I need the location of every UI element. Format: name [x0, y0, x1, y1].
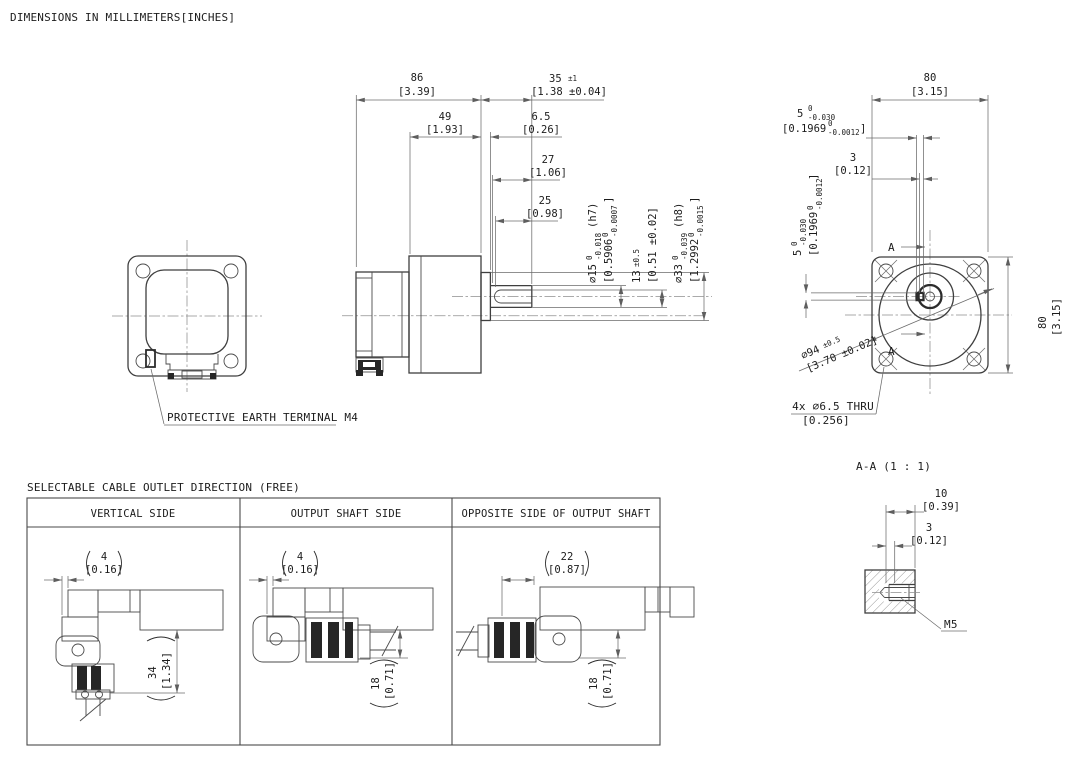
- section-title: A-A (1 : 1): [856, 460, 931, 473]
- svg-text:]: ]: [808, 174, 820, 180]
- dim-key-width: 5 0 -0.030 [0.1969 0 -0.0012 ]: [782, 104, 940, 138]
- svg-text:0: 0: [671, 255, 680, 260]
- mounting-hole: [224, 264, 238, 278]
- svg-text:80: 80: [924, 72, 937, 84]
- svg-text:0: 0: [585, 255, 594, 260]
- earth-terminal-label: PROTECTIVE EARTH TERMINAL M4: [167, 411, 358, 424]
- svg-text:[0.51 ±0.02]: [0.51 ±0.02]: [647, 207, 659, 283]
- svg-text:[1.93]: [1.93]: [426, 124, 464, 136]
- svg-text:[0.16]: [0.16]: [85, 564, 123, 576]
- column-header: OUTPUT SHAFT SIDE: [291, 508, 402, 520]
- svg-text:]: ]: [689, 197, 701, 203]
- cell-output-shaft-side: 4 [0.16] 18 [0.71]: [249, 551, 433, 707]
- svg-text:∅33: ∅33: [673, 264, 685, 283]
- svg-text:86: 86: [411, 72, 424, 84]
- mounting-hole: [136, 264, 150, 278]
- cell-vertical-side: 4 [0.16] 34 [1.34]: [44, 551, 223, 721]
- dim-80-top: 80 [3.15]: [872, 72, 988, 252]
- svg-text:6.5: 6.5: [532, 111, 551, 123]
- column-header: VERTICAL SIDE: [91, 508, 176, 520]
- mounting-hole: [136, 354, 150, 368]
- svg-text:[0.71]: [0.71]: [602, 662, 614, 700]
- dim-6-5: 6.5 [0.26]: [490, 111, 562, 137]
- dim-key-height: 13 ±0.5 [0.51 ±0.02]: [631, 207, 662, 307]
- svg-text:35: 35: [549, 73, 562, 85]
- dim-boss-diameter: ∅33 0 -0.039 (h8) [1.2992 0 -0.0015 ]: [671, 197, 705, 321]
- cell-opposite-side: 22 [0.87] 18 [0.71]: [456, 551, 694, 707]
- svg-text:22: 22: [561, 551, 574, 563]
- svg-text:49: 49: [439, 111, 452, 123]
- svg-text:[1.2992: [1.2992: [689, 239, 701, 283]
- svg-text:±0.5: ±0.5: [632, 249, 641, 267]
- dim-bolt-circle: ∅94 ±0.5 [3.70 ±0.02]: [799, 289, 994, 375]
- svg-text:18: 18: [588, 677, 600, 690]
- svg-text:10: 10: [935, 488, 948, 500]
- dim-49: 49 [1.93]: [410, 111, 481, 137]
- svg-text:±0.5: ±0.5: [821, 335, 841, 350]
- svg-text:-0.0012: -0.0012: [815, 178, 824, 210]
- svg-text:[1.06]: [1.06]: [529, 167, 567, 179]
- cable-outlet-table: SELECTABLE CABLE OUTLET DIRECTION (FREE)…: [27, 481, 694, 745]
- svg-text:-0.0007: -0.0007: [610, 205, 619, 237]
- section-view-a-a: A-A (1 : 1) 10 [0.39] 3 [0.12]: [856, 460, 967, 631]
- svg-text:34: 34: [147, 666, 159, 679]
- dim-25: 25 [0.98]: [496, 195, 564, 221]
- svg-text:(h8): (h8): [673, 203, 685, 228]
- svg-text:[0.1969: [0.1969: [808, 212, 820, 256]
- svg-text:]: ]: [603, 197, 615, 203]
- svg-text:[3.15]: [3.15]: [1051, 298, 1063, 336]
- svg-text:∅15: ∅15: [587, 264, 599, 283]
- svg-text:[0.16]: [0.16]: [281, 564, 319, 576]
- svg-text:0: 0: [790, 241, 799, 246]
- svg-text:[0.5906: [0.5906: [603, 239, 615, 283]
- gearhead-body: [409, 256, 481, 373]
- engineering-drawing: DIMENSIONS IN MILLIMETERS[INCHES] PROTEC…: [0, 0, 1072, 760]
- svg-text:[0.71]: [0.71]: [384, 662, 396, 700]
- dim-key-offset: 3 [0.12]: [834, 152, 938, 179]
- svg-text:[1.34]: [1.34]: [161, 652, 173, 690]
- column-header: OPPOSITE SIDE OF OUTPUT SHAFT: [461, 508, 651, 520]
- side-view: 86 [3.39] 35 ±1 [1.38 ±0.04] 49 [1.93] 6…: [342, 72, 712, 376]
- svg-text:-0.0012: -0.0012: [828, 128, 860, 137]
- svg-text:A: A: [888, 345, 895, 358]
- front-view: 80 [3.15] 5 0 -0.030 [0.1969 0 -0.0012 ]…: [782, 72, 1063, 427]
- rear-view: PROTECTIVE EARTH TERMINAL M4: [112, 240, 358, 425]
- svg-text:5: 5: [797, 108, 803, 120]
- svg-text:[0.12]: [0.12]: [834, 165, 872, 177]
- svg-text:4: 4: [297, 551, 303, 563]
- svg-text:[0.12]: [0.12]: [910, 535, 948, 547]
- drawing-page: DIMENSIONS IN MILLIMETERS[INCHES] PROTEC…: [0, 0, 1072, 760]
- svg-text:0: 0: [601, 232, 610, 237]
- holes-callout: 4x ∅6.5 THRU [0.256]: [791, 367, 884, 427]
- svg-text:A: A: [888, 241, 895, 254]
- earth-terminal: [146, 350, 155, 367]
- dim-86: 86 [3.39]: [356, 72, 481, 100]
- svg-text:[1.38 ±0.04]: [1.38 ±0.04]: [531, 86, 607, 98]
- mounting-hole: [224, 354, 238, 368]
- svg-text:-0.030: -0.030: [799, 218, 808, 246]
- svg-text:80: 80: [1037, 316, 1049, 329]
- svg-text:13: 13: [631, 270, 643, 283]
- dim-shaft-diameter: ∅15 0 -0.018 (h7) [0.5906 0 -0.0007 ]: [585, 197, 621, 308]
- svg-text:5: 5: [792, 250, 804, 256]
- svg-text:[0.256]: [0.256]: [802, 414, 850, 427]
- svg-text:[3.15]: [3.15]: [911, 86, 949, 98]
- svg-text:3: 3: [926, 522, 932, 534]
- svg-text:4: 4: [101, 551, 107, 563]
- svg-text:0: 0: [808, 104, 813, 113]
- svg-text:0: 0: [828, 119, 833, 128]
- svg-text:27: 27: [542, 154, 555, 166]
- svg-text:3: 3: [850, 152, 856, 164]
- svg-text:0: 0: [687, 232, 696, 237]
- svg-text:±1: ±1: [568, 74, 577, 83]
- svg-text:]: ]: [860, 123, 866, 135]
- motor-body: [356, 272, 409, 357]
- svg-text:[0.87]: [0.87]: [548, 564, 586, 576]
- svg-text:-0.0015: -0.0015: [696, 205, 705, 237]
- svg-text:[0.26]: [0.26]: [522, 124, 560, 136]
- svg-text:18: 18: [370, 677, 382, 690]
- svg-text:[3.39]: [3.39]: [398, 86, 436, 98]
- table-title: SELECTABLE CABLE OUTLET DIRECTION (FREE): [27, 481, 300, 494]
- svg-text:[0.98]: [0.98]: [526, 208, 564, 220]
- svg-text:(h7): (h7): [587, 203, 599, 228]
- svg-text:25: 25: [539, 195, 552, 207]
- dim-27: 27 [1.06]: [493, 154, 567, 180]
- units-note: DIMENSIONS IN MILLIMETERS[INCHES]: [10, 11, 235, 24]
- svg-text:[0.39]: [0.39]: [922, 501, 960, 513]
- svg-text:[0.1969: [0.1969: [782, 123, 826, 135]
- svg-text:4x ∅6.5 THRU: 4x ∅6.5 THRU: [792, 400, 874, 413]
- dim-35: 35 ±1 [1.38 ±0.04]: [481, 73, 607, 100]
- svg-text:0: 0: [806, 205, 815, 210]
- svg-text:M5: M5: [944, 618, 958, 631]
